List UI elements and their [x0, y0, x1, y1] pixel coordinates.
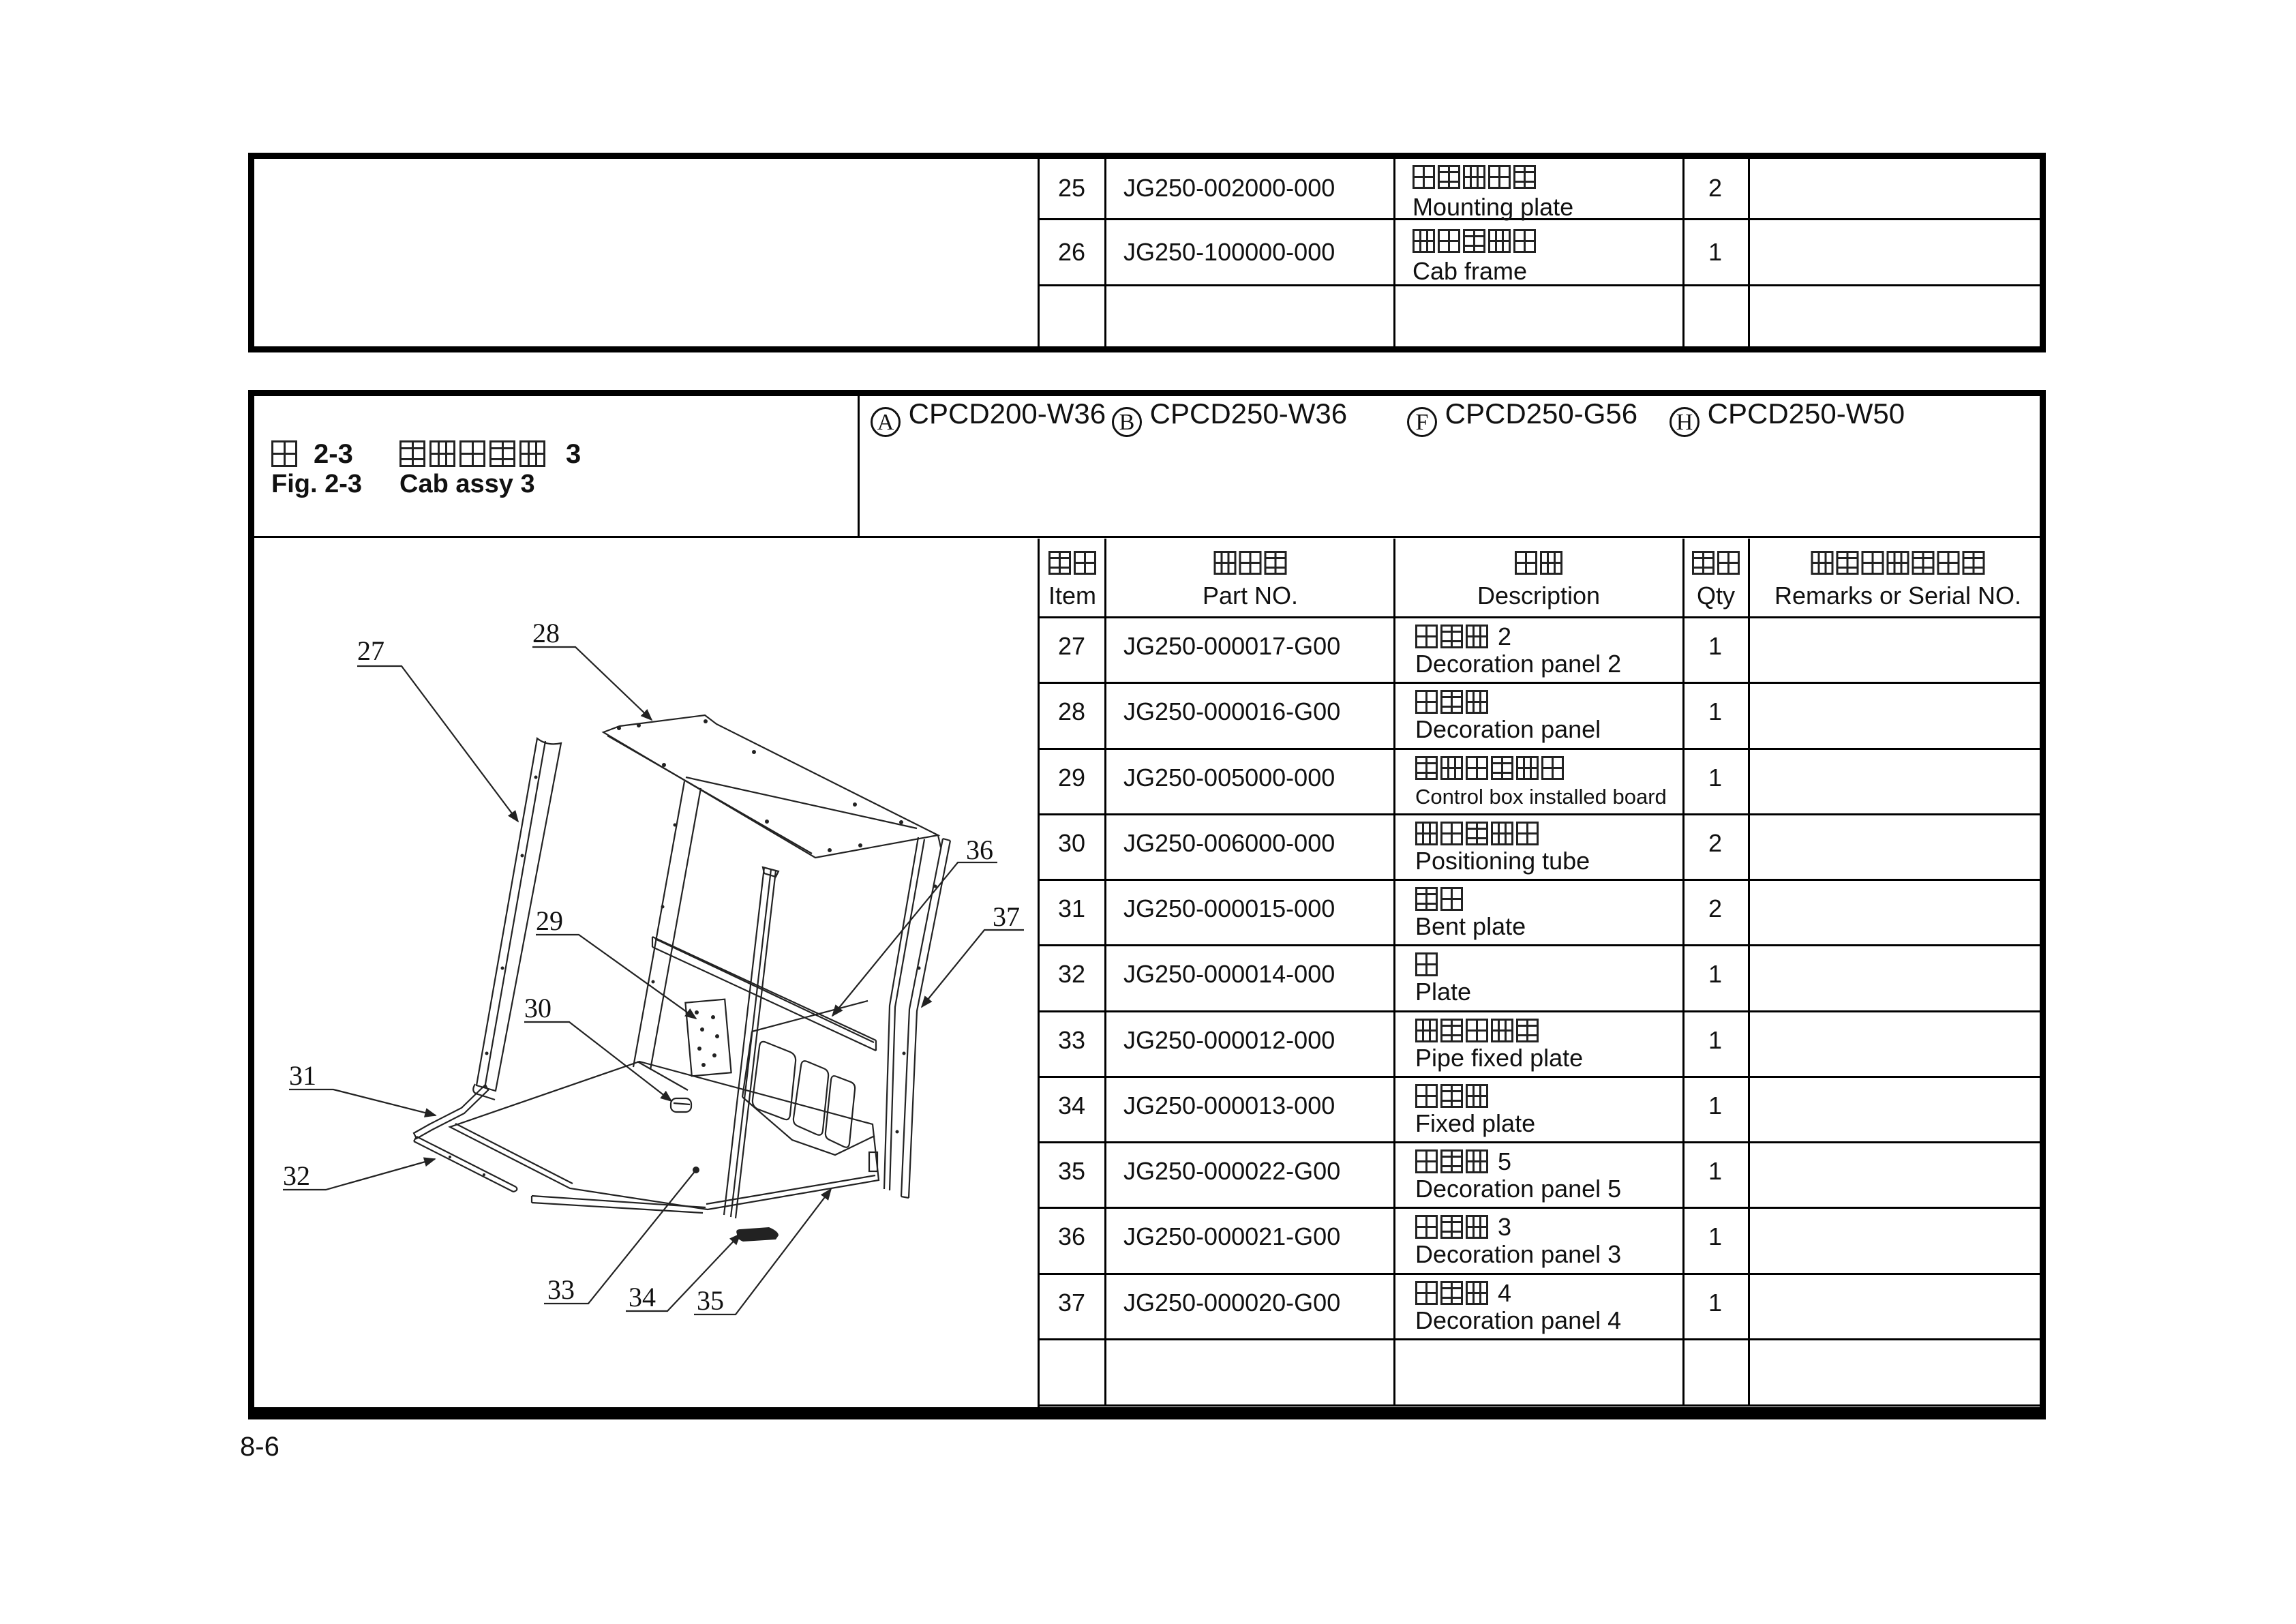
- svg-text:28: 28: [532, 618, 560, 648]
- svg-text:35: 35: [697, 1285, 724, 1316]
- svg-text:30: 30: [524, 993, 552, 1023]
- svg-text:36: 36: [966, 834, 993, 865]
- svg-text:31: 31: [289, 1060, 316, 1091]
- svg-text:37: 37: [993, 901, 1020, 932]
- svg-text:29: 29: [536, 905, 563, 936]
- svg-text:27: 27: [357, 635, 384, 666]
- svg-text:32: 32: [283, 1160, 310, 1191]
- svg-text:33: 33: [547, 1274, 575, 1305]
- svg-text:34: 34: [629, 1282, 656, 1312]
